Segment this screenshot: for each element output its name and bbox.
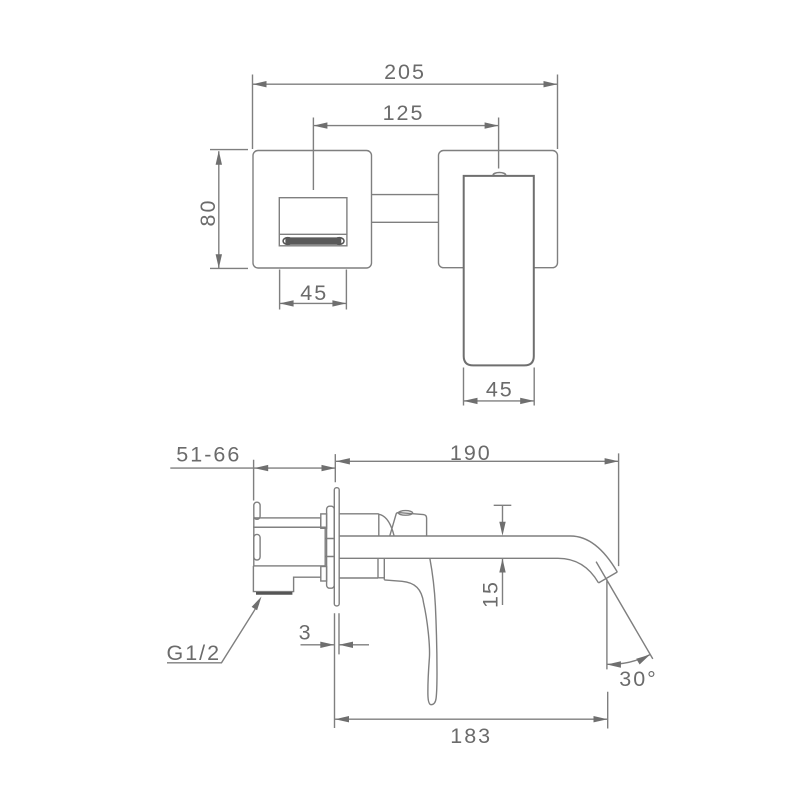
svg-text:190: 190 [450, 441, 492, 465]
svg-text:183: 183 [450, 724, 492, 748]
svg-text:15: 15 [478, 580, 502, 608]
svg-text:45: 45 [300, 281, 328, 305]
svg-text:45: 45 [486, 378, 514, 402]
svg-text:80: 80 [196, 199, 220, 227]
svg-text:205: 205 [384, 60, 426, 84]
svg-text:51-66: 51-66 [176, 443, 241, 467]
svg-text:G1/2: G1/2 [167, 641, 222, 665]
svg-text:30°: 30° [619, 667, 658, 691]
svg-text:125: 125 [383, 101, 425, 125]
svg-text:3: 3 [299, 621, 313, 645]
